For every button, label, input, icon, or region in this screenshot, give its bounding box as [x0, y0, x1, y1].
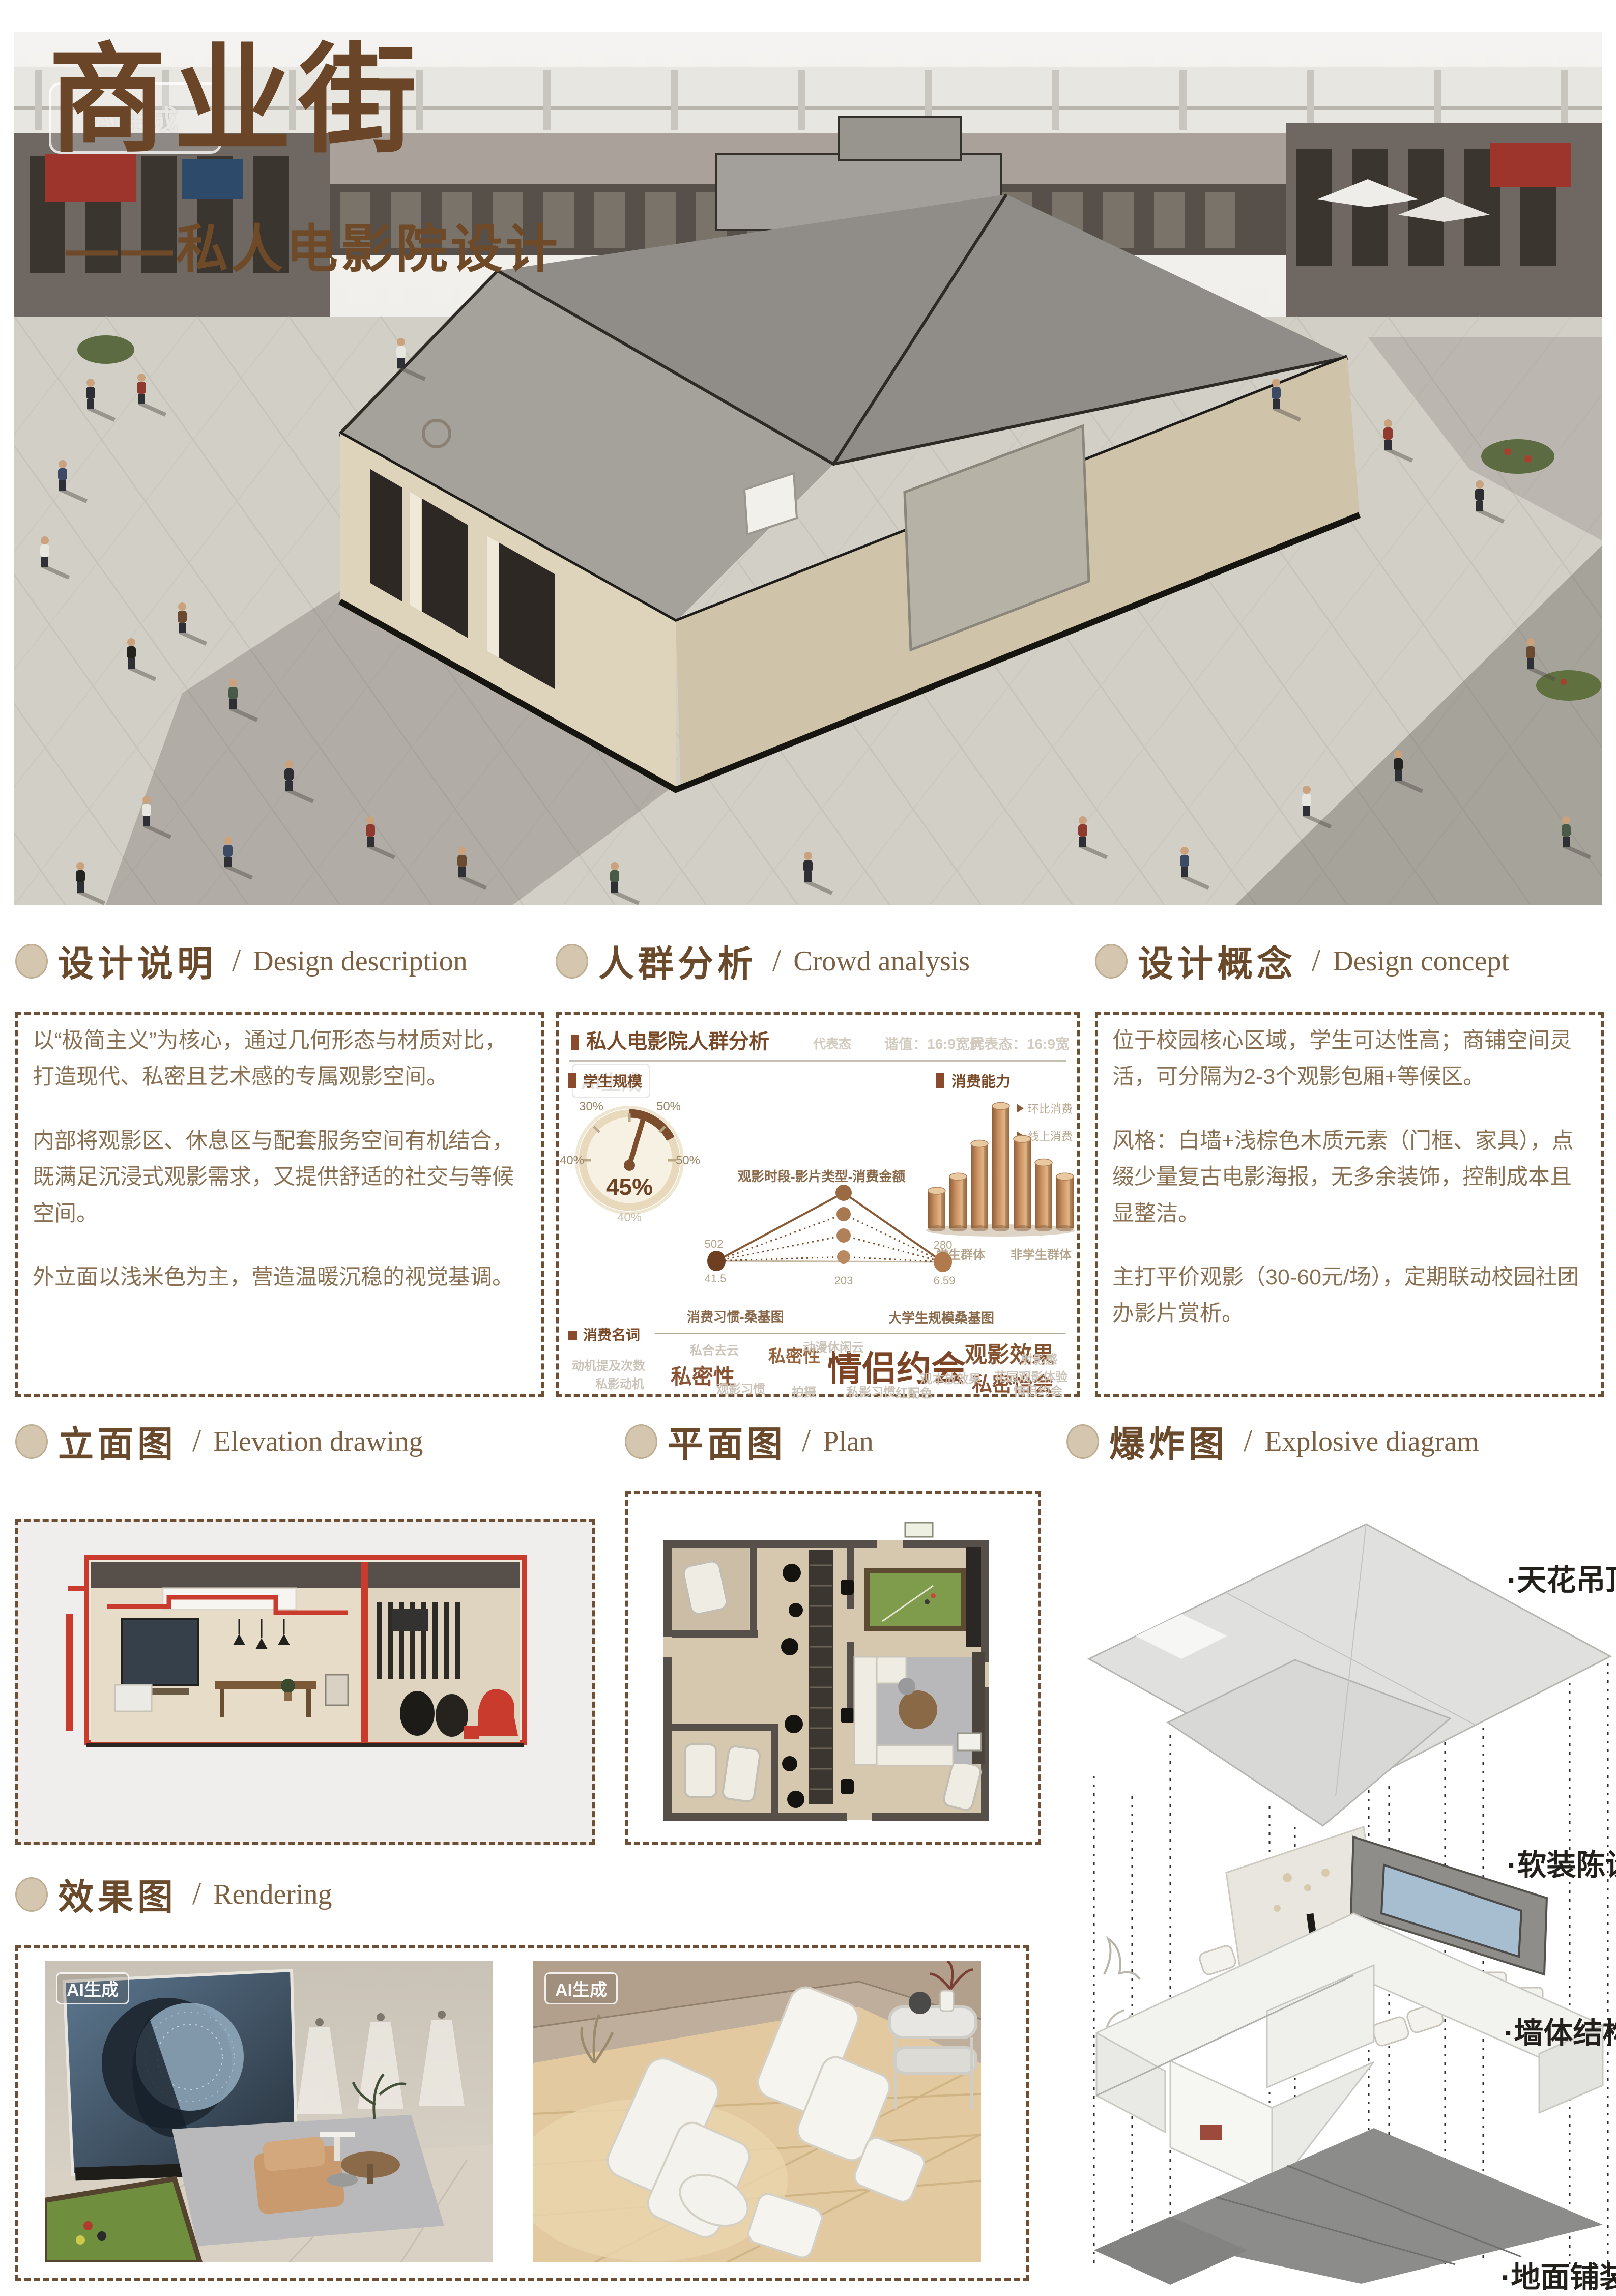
- slash-divider: /: [232, 943, 241, 979]
- svg-text:40%: 40%: [560, 1154, 584, 1167]
- sankey-label-right: 大学生规模桑基图: [888, 1308, 994, 1327]
- gauge-chart: 30% 50% 40% 50% 40% 45%: [566, 1090, 693, 1222]
- header-design-concept: 设计概念 / Design concept: [1095, 935, 1509, 987]
- exploded-label-softdecor: ·软装陈设: [1507, 1841, 1616, 1884]
- cinema-room-illustration: [45, 1961, 493, 2262]
- infographic-meta: 谐值：16:9宽屏: [884, 1033, 984, 1053]
- svg-text:41.5: 41.5: [705, 1272, 727, 1285]
- links-title: 观影时段-影片类型-消费金额: [738, 1166, 905, 1185]
- header-elevation: 立面图 / Elevation drawing: [15, 1416, 423, 1467]
- infographic-meta: 代表态：16:9宽: [970, 1033, 1070, 1053]
- section-dot-icon: [15, 944, 48, 979]
- wordcloud-faint-word: 动机提及次数: [572, 1356, 645, 1373]
- rendering-box: AI生成: [15, 1945, 1029, 2281]
- infographic-meta: 代表态: [813, 1034, 851, 1052]
- header-rendering: 效果图 / Rendering: [15, 1869, 332, 1920]
- wordcloud-faint-word: 射影感: [1021, 1350, 1057, 1367]
- section-title-zh: 立面图: [58, 1416, 177, 1467]
- wordcloud-faint-word: 观影习惯: [716, 1379, 765, 1397]
- section-title-en: Explosive diagram: [1264, 1425, 1479, 1458]
- section-dot-icon: [625, 1424, 657, 1459]
- design-description-box: 以“极简主义”为核心，通过几何形态与材质对比，打造现代、私密且艺术感的专属观影空…: [15, 1012, 544, 1397]
- header-crowd-analysis: 人群分析 / Crowd analysis: [556, 935, 970, 987]
- plan-pool-table: [867, 1570, 964, 1629]
- section-title-zh: 效果图: [58, 1869, 177, 1920]
- svg-text:50%: 50%: [676, 1154, 700, 1167]
- paragraph: 位于校园核心区域，学生可达性高；商铺空间灵活，可分隔为2-3个观影包厢+等候区。: [1112, 1023, 1586, 1096]
- bar-axis-label: 非学生群体: [1011, 1245, 1072, 1262]
- slash-divider: /: [772, 943, 781, 979]
- slash-divider: /: [802, 1423, 811, 1459]
- section-title-en: Design concept: [1333, 945, 1509, 978]
- elevation-drawing-box: [15, 1519, 595, 1845]
- wordcloud-faint-word: 动漫休闲云: [803, 1337, 864, 1355]
- section-title-en: Elevation drawing: [213, 1425, 423, 1458]
- svg-text:30%: 30%: [579, 1100, 603, 1113]
- storefronts-right: [1286, 123, 1602, 332]
- section-title-zh: 设计说明: [58, 935, 217, 987]
- section-dot-icon: [1066, 1424, 1099, 1459]
- svg-text:502: 502: [705, 1238, 724, 1250]
- page-title: 商业街: [48, 36, 424, 165]
- section-dot-icon: [15, 1877, 48, 1912]
- section-title-zh: 爆炸图: [1109, 1416, 1228, 1467]
- svg-text:40%: 40%: [617, 1211, 642, 1224]
- floor-plan-drawing: [628, 1494, 1038, 1842]
- plan-ac-unit: [905, 1523, 933, 1537]
- infographic-title: 私人电影院人群分析: [571, 1025, 769, 1054]
- crowd-analysis-infographic: AI生成 私人电影院人群分析 代表态 谐值：16:9宽屏 代表态：16:9宽 学…: [556, 1012, 1080, 1397]
- exploded-label-floor: ·地面铺装: [1501, 2253, 1616, 2296]
- elevation-section-drawing: [18, 1522, 592, 1842]
- page-subtitle: ——私人电影院设计: [66, 208, 561, 282]
- slash-divider: /: [192, 1423, 201, 1459]
- plan-round-table: [899, 1690, 937, 1729]
- wordcloud-faint-word: 情侣约会: [1014, 1381, 1062, 1399]
- paragraph: 风格：白墙+浅棕色木质元素（门框、家具），点缀少量复古电影海报，无多余装饰，控制…: [1112, 1123, 1586, 1232]
- rendering-cinema-room: AI生成: [45, 1961, 493, 2262]
- divider-line: [655, 1333, 1065, 1334]
- sankey-label-left: 消费习惯-桑基图: [687, 1307, 784, 1326]
- paragraph: 外立面以浅米色为主，营造温暖沉稳的视觉基调。: [33, 1259, 527, 1296]
- section-dot-icon: [1095, 944, 1128, 979]
- wordcloud-faint-word: 私合去云: [690, 1340, 739, 1358]
- header-design-description: 设计说明 / Design description: [15, 935, 468, 987]
- header-explosive: 爆炸图 / Explosive diagram: [1066, 1416, 1479, 1467]
- floor-plan-box: [625, 1491, 1041, 1845]
- svg-text:6.59: 6.59: [934, 1274, 956, 1287]
- header-plan: 平面图 / Plan: [625, 1416, 874, 1467]
- recliner-room-illustration: [533, 1961, 981, 2262]
- wordcloud-faint-word: 私影动机: [595, 1374, 644, 1392]
- paragraph: 内部将观影区、休息区与配套服务空间有机结合，既满足沉浸式观影需求，又提供舒适的社…: [33, 1123, 527, 1232]
- wordcloud: 私密性 私密性 情侣约会 观影效果 私密怡会 动机提及次数私影动机私合去云观影习…: [564, 1339, 1073, 1391]
- wordcloud-faint-word: 拍摄: [792, 1382, 816, 1400]
- slash-divider: /: [1312, 943, 1320, 979]
- exploded-label-ceiling: ·天花吊顶: [1507, 1556, 1616, 1599]
- section-dot-icon: [15, 1424, 48, 1459]
- section-title-zh: 设计概念: [1138, 935, 1296, 987]
- design-concept-box: 位于校园核心区域，学生可达性高；商铺空间灵活，可分隔为2-3个观影包厢+等候区。…: [1095, 1012, 1604, 1397]
- exploded-label-walls: ·墙体结构: [1504, 2009, 1616, 2052]
- section-title-en: Rendering: [213, 1878, 332, 1911]
- plan-counter: [809, 1550, 833, 1804]
- section-title-en: Plan: [823, 1425, 874, 1458]
- section-title-zh: 人群分析: [598, 935, 757, 987]
- divider-line: [569, 1060, 1066, 1062]
- paragraph: 以“极简主义”为核心，通过几何形态与材质对比，打造现代、私密且艺术感的专属观影空…: [33, 1023, 527, 1096]
- svg-text:203: 203: [834, 1274, 853, 1287]
- paragraph: 主打平价观影（30-60元/场），定期联动校园社团办影片赏析。: [1112, 1259, 1586, 1332]
- radial-links-chart: 502 203 280 41.5 6.59: [686, 1185, 971, 1305]
- svg-text:50%: 50%: [656, 1100, 681, 1113]
- section-title-zh: 平面图: [668, 1416, 787, 1467]
- section-title-en: Crowd analysis: [793, 945, 970, 978]
- rendering-recliner-room: AI生成: [533, 1961, 981, 2262]
- ai-watermark-badge: AI生成: [544, 1972, 618, 2004]
- ai-watermark-badge: AI生成: [56, 1972, 129, 2004]
- gauge-label: 学生规模: [568, 1070, 642, 1091]
- wordcloud-faint-word: 观本放效果: [920, 1369, 981, 1387]
- wordcloud-faint-word: 私影习惯: [847, 1382, 896, 1400]
- slash-divider: /: [1244, 1423, 1252, 1459]
- section-dot-icon: [556, 944, 588, 979]
- gauge-value: 45%: [606, 1173, 653, 1200]
- svg-text:280: 280: [934, 1239, 953, 1251]
- slash-divider: /: [192, 1876, 201, 1912]
- section-title-en: Design description: [253, 945, 467, 978]
